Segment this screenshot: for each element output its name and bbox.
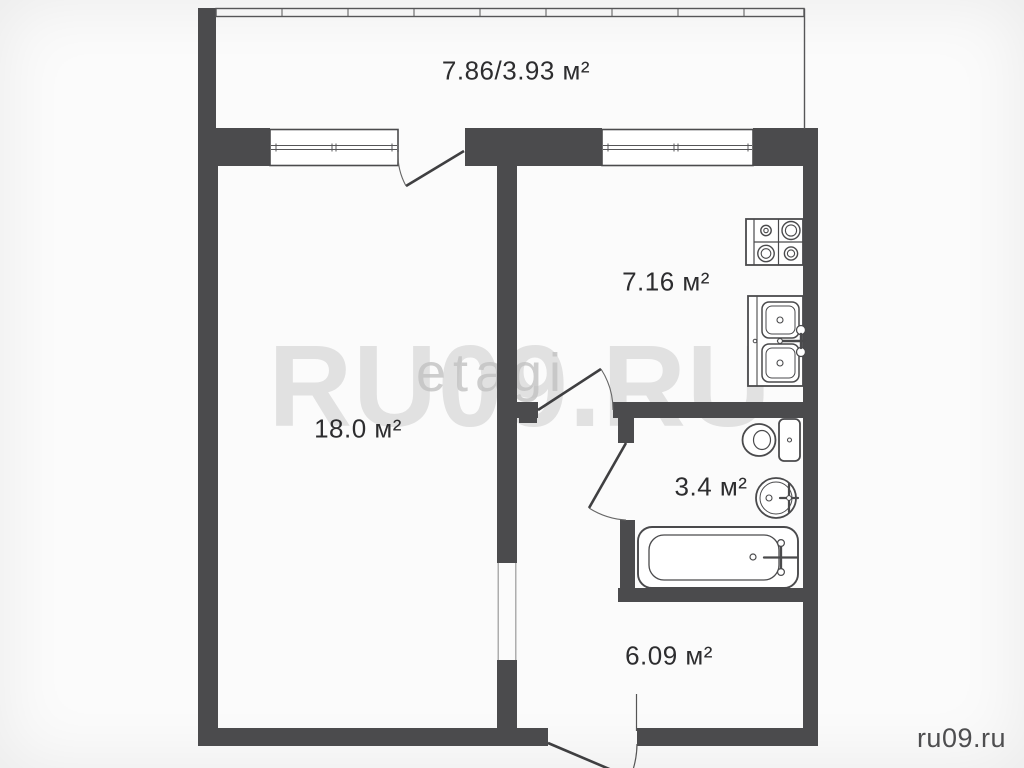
wall-bath-bottom bbox=[618, 588, 803, 602]
balcony-door bbox=[398, 151, 464, 186]
entrance-door bbox=[548, 694, 637, 768]
wall-kitchen-bath bbox=[613, 402, 803, 418]
kitchen-sink-icon bbox=[748, 296, 806, 386]
wall-left bbox=[198, 128, 218, 746]
wall-bottom-b bbox=[637, 728, 818, 746]
bathtub-icon bbox=[638, 527, 798, 588]
wall-top-b bbox=[465, 128, 602, 166]
floorplan-drawing bbox=[0, 0, 1024, 768]
wall-bottom-a bbox=[198, 728, 548, 746]
wall-bath-left-a bbox=[618, 418, 634, 443]
wall-mid-vertical-b bbox=[497, 660, 517, 728]
wall-mid-vertical-a bbox=[497, 166, 517, 563]
site-watermark: ru09.ru bbox=[917, 723, 1006, 754]
stove-icon bbox=[746, 219, 803, 265]
room-label-hallway: 6.09 м² bbox=[625, 641, 713, 672]
room-label-living-room: 18.0 м² bbox=[314, 414, 402, 445]
wall-kitchen-stub bbox=[517, 402, 538, 418]
living-room-opening bbox=[498, 563, 516, 660]
room-label-kitchen: 7.16 м² bbox=[622, 267, 710, 298]
wall-right bbox=[803, 128, 818, 746]
washbasin-icon bbox=[756, 478, 798, 518]
room-label-bathroom: 3.4 м² bbox=[675, 472, 748, 503]
room-label-balcony: 7.86/3.93 м² bbox=[442, 56, 590, 87]
floorplan-canvas: RU09.RU etagi bbox=[0, 0, 1024, 768]
wall-balcony-left bbox=[198, 8, 216, 130]
walls bbox=[198, 8, 818, 746]
toilet-icon bbox=[743, 419, 801, 461]
kitchen-door bbox=[538, 369, 613, 410]
bathroom-door bbox=[589, 443, 626, 520]
wall-kitchen-jamb bbox=[519, 418, 537, 423]
wall-bath-left-b bbox=[620, 520, 635, 588]
kitchen-window bbox=[602, 130, 753, 166]
living-room-window bbox=[270, 130, 398, 166]
